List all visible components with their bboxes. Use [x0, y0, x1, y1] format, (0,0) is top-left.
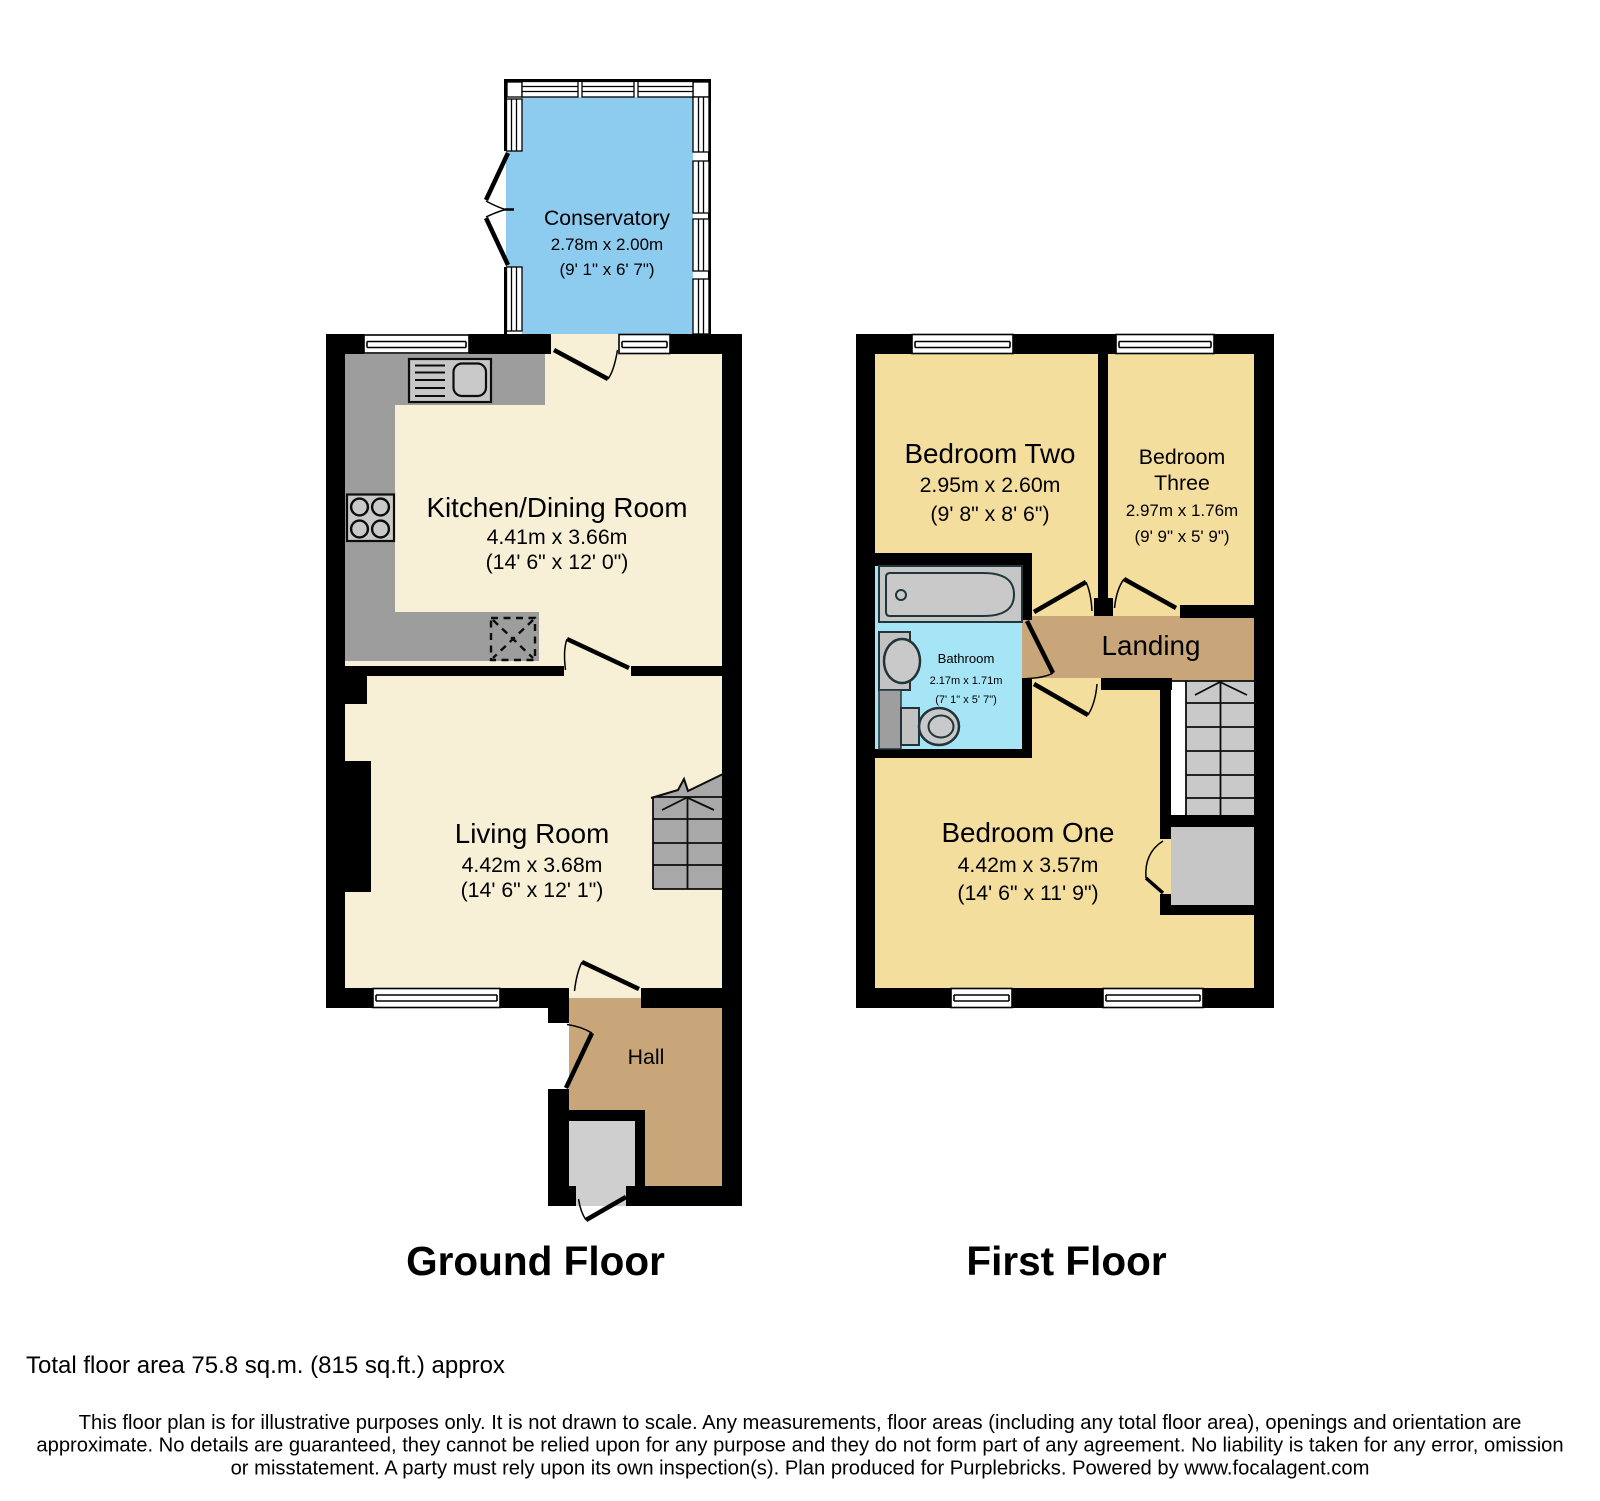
- svg-text:This floor plan is for illustr: This floor plan is for illustrative purp…: [79, 1412, 1522, 1434]
- svg-text:Kitchen/Dining Room: Kitchen/Dining Room: [426, 492, 687, 523]
- svg-text:Bedroom One: Bedroom One: [941, 817, 1114, 848]
- svg-text:(7' 1" x 5' 7"): (7' 1" x 5' 7"): [935, 694, 997, 706]
- svg-text:(14' 6" x 11' 9"): (14' 6" x 11' 9"): [957, 881, 1098, 905]
- svg-text:Landing: Landing: [1102, 630, 1201, 661]
- svg-text:(14' 6" x 12' 1"): (14' 6" x 12' 1"): [461, 878, 604, 902]
- svg-text:Hall: Hall: [628, 1045, 665, 1069]
- svg-text:4.42m x 3.68m: 4.42m x 3.68m: [462, 853, 603, 877]
- svg-text:Living Room: Living Room: [455, 818, 610, 849]
- svg-text:Ground Floor: Ground Floor: [406, 1238, 665, 1284]
- svg-text:(14' 6" x 12' 0"): (14' 6" x 12' 0"): [486, 550, 629, 574]
- svg-text:Conservatory: Conservatory: [544, 207, 670, 230]
- svg-text:(9' 1" x 6' 7"): (9' 1" x 6' 7"): [559, 260, 654, 279]
- svg-text:4.42m x 3.57m: 4.42m x 3.57m: [958, 853, 1099, 877]
- svg-text:Bathroom: Bathroom: [938, 651, 995, 666]
- svg-text:First Floor: First Floor: [966, 1238, 1166, 1284]
- svg-text:(9' 9" x 5' 9"): (9' 9" x 5' 9"): [1134, 527, 1229, 546]
- svg-text:2.95m x 2.60m: 2.95m x 2.60m: [920, 473, 1061, 497]
- svg-text:Three: Three: [1154, 471, 1210, 495]
- svg-text:2.78m x 2.00m: 2.78m x 2.00m: [551, 235, 663, 254]
- svg-text:Bedroom: Bedroom: [1139, 445, 1225, 469]
- svg-text:(9' 8" x 8' 6"): (9' 8" x 8' 6"): [930, 502, 1049, 526]
- svg-text:2.17m x 1.71m: 2.17m x 1.71m: [930, 675, 1003, 687]
- svg-text:2.97m x 1.76m: 2.97m x 1.76m: [1126, 501, 1238, 520]
- svg-text:Bedroom Two: Bedroom Two: [905, 438, 1076, 469]
- svg-text:4.41m x 3.66m: 4.41m x 3.66m: [487, 525, 628, 549]
- svg-text:or misstatement. A party must: or misstatement. A party must rely upon …: [231, 1457, 1370, 1479]
- svg-text:Total floor area 75.8 sq.m. (8: Total floor area 75.8 sq.m. (815 sq.ft.)…: [26, 1352, 505, 1379]
- svg-text:approximate. No details are gu: approximate. No details are guaranteed, …: [36, 1435, 1563, 1457]
